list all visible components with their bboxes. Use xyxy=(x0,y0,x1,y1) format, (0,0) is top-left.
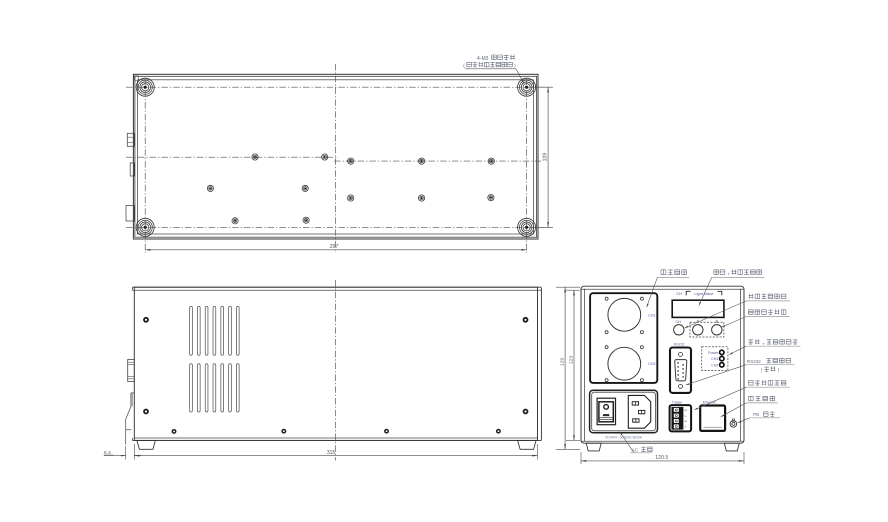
svg-text:CH: CH xyxy=(676,291,682,296)
svg-text:123: 123 xyxy=(568,356,574,364)
svg-text:2+: 2+ xyxy=(684,419,688,423)
svg-text:297: 297 xyxy=(330,244,339,250)
svg-text:2-: 2- xyxy=(684,425,687,429)
svg-text:CH2: CH2 xyxy=(648,362,656,366)
svg-text:315: 315 xyxy=(327,450,336,456)
svg-text:AC: AC xyxy=(632,448,639,453)
svg-text:CH: CH xyxy=(676,320,682,324)
svg-text:4-M3: 4-M3 xyxy=(477,56,489,62)
svg-text:(: ( xyxy=(463,63,465,69)
svg-text:): ) xyxy=(514,63,516,69)
svg-text:1+: 1+ xyxy=(684,408,688,412)
svg-text:(: ( xyxy=(761,368,763,373)
svg-text:CH1: CH1 xyxy=(711,357,718,361)
svg-text:CH2: CH2 xyxy=(711,363,718,367)
svg-text:129: 129 xyxy=(559,358,565,366)
svg-text:): ) xyxy=(778,368,780,373)
svg-text:Ethernet: Ethernet xyxy=(703,400,716,404)
svg-text:Power: Power xyxy=(708,351,719,355)
svg-text:PE: PE xyxy=(753,412,759,417)
svg-text:109: 109 xyxy=(542,153,548,162)
svg-text:+: + xyxy=(727,272,730,277)
svg-text:1-: 1- xyxy=(684,414,687,418)
svg-text:120.5: 120.5 xyxy=(655,455,668,461)
svg-text:Trigger: Trigger xyxy=(672,400,683,404)
svg-text:RS232: RS232 xyxy=(747,359,761,364)
svg-text:RS232: RS232 xyxy=(674,343,685,347)
svg-text:CH1: CH1 xyxy=(648,313,656,317)
